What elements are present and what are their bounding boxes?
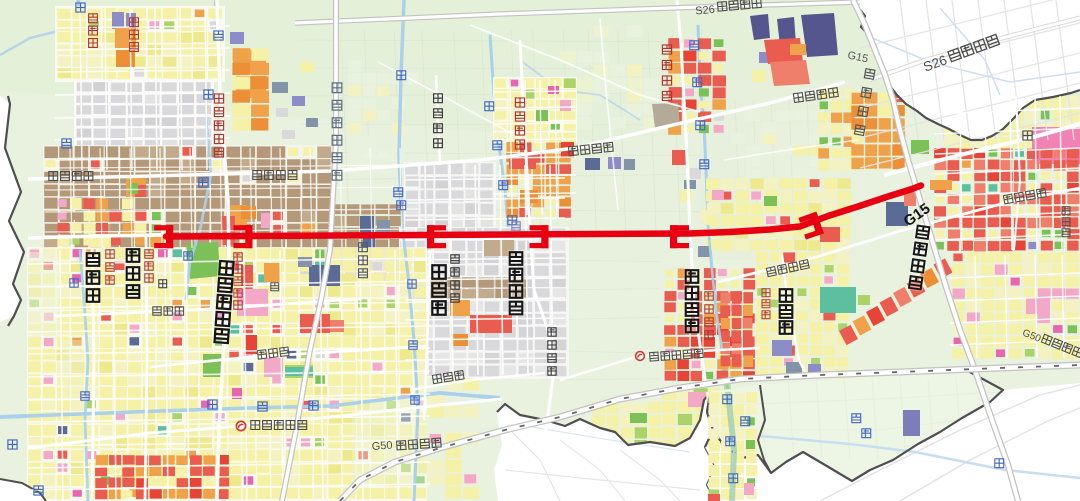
svg-text:S26: S26 <box>695 4 716 18</box>
svg-text:G50: G50 <box>371 440 393 453</box>
